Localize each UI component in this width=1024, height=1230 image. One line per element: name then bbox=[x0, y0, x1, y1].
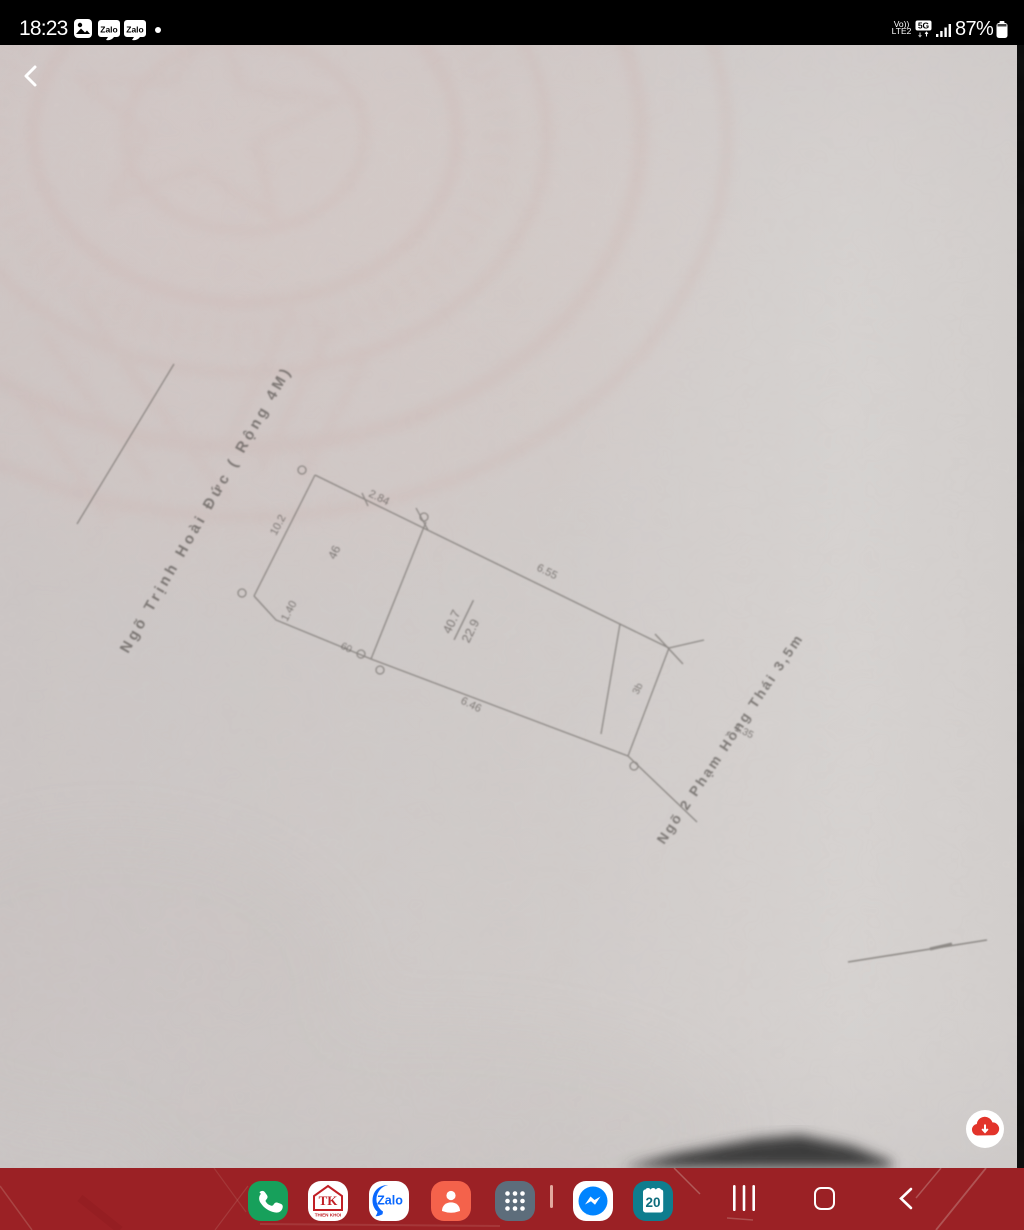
svg-text:20: 20 bbox=[645, 1195, 660, 1210]
svg-text:THIEN KHOI: THIEN KHOI bbox=[315, 1213, 342, 1218]
svg-text:Zalo: Zalo bbox=[377, 1194, 403, 1208]
svg-text:Zalo: Zalo bbox=[126, 25, 143, 35]
svg-text:TK: TK bbox=[319, 1193, 339, 1208]
svg-text:5G: 5G bbox=[918, 21, 930, 31]
svg-text:Zalo: Zalo bbox=[100, 25, 117, 35]
